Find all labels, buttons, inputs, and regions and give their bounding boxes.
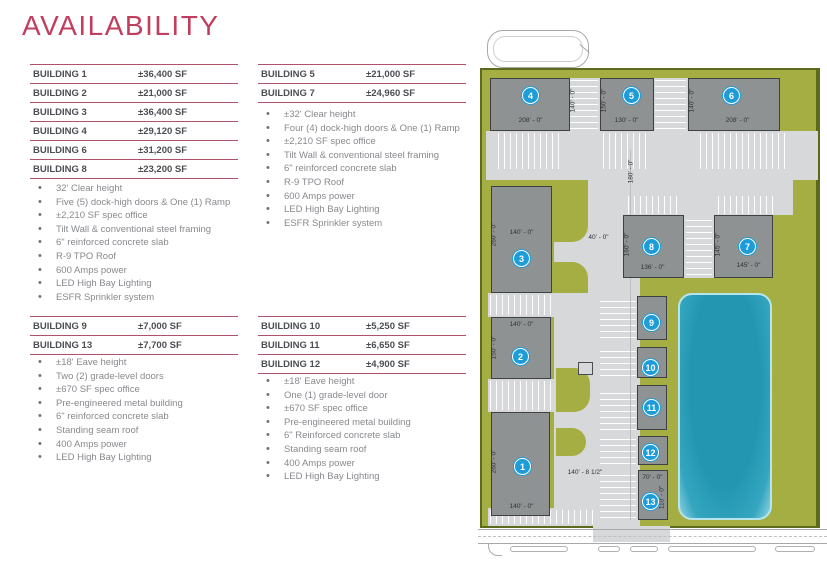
building-sf-value: ±5,250 SF (366, 321, 410, 332)
table-row: BUILDING 7 ±24,960 SF (258, 84, 466, 103)
spec-bullet: 6" reinforced concrete slab (30, 412, 252, 422)
building-2-badge: 2 (512, 348, 529, 365)
building-label: BUILDING 5 (261, 69, 366, 80)
spec-bullet: Two (2) grade-level doors (30, 372, 252, 382)
parking-stripes (700, 133, 785, 169)
page-title: AVAILABILITY (22, 10, 219, 42)
landscape-island (554, 180, 588, 242)
road-end-curve (488, 544, 502, 556)
building-sf-value: ±31,200 SF (138, 145, 187, 156)
building-4-badge: 4 (522, 87, 539, 104)
spec-list-1: 32' Clear heightFive (5) dock-high doors… (30, 184, 252, 306)
building-sf-value: ±7,700 SF (138, 340, 182, 351)
spec-bullet: LED High Bay Lighting (258, 472, 480, 482)
spec-bullet: 600 Amps power (30, 266, 252, 276)
road-median-island (630, 546, 658, 552)
road-median-island (775, 546, 815, 552)
spec-bullet: ESFR Sprinkler system (258, 219, 480, 229)
spec-bullet: ±18' Eave height (30, 358, 252, 368)
detention-pond (678, 293, 772, 520)
table-row: BUILDING 12 ±4,900 SF (258, 355, 466, 374)
spec-bullet: Standing seam roof (30, 426, 252, 436)
table-row: BUILDING 4 ±29,120 SF (30, 122, 238, 141)
table-row: BUILDING 1 ±36,400 SF (30, 65, 238, 84)
spec-bullet: ±2,210 SF spec office (30, 211, 252, 221)
parking-stripes (628, 196, 678, 214)
building-4-depth-dim: 140' - 0" (570, 81, 577, 121)
building-3-width-dim: 140' - 0" (499, 229, 544, 236)
spec-bullet: ±670 SF spec office (258, 404, 480, 414)
spec-bullet: R-9 TPO Roof (258, 178, 480, 188)
building-7-badge: 7 (739, 238, 756, 255)
building-1-badge: 1 (514, 458, 531, 475)
building-13-width-dim: 70' - 0" (630, 474, 675, 481)
building-10-badge: 10 (642, 359, 659, 376)
drive-lane-line (630, 150, 631, 520)
spec-bullet: 600 Amps power (258, 192, 480, 202)
building-13-depth-dim: 110' - 0" (659, 478, 666, 518)
building-label: BUILDING 11 (261, 340, 366, 351)
building-3-badge: 3 (513, 250, 530, 267)
building-13-badge: 13 (642, 493, 659, 510)
building-label: BUILDING 2 (33, 88, 138, 99)
spec-bullet: Standing seam roof (258, 445, 480, 455)
table-row: BUILDING 13 ±7,700 SF (30, 336, 238, 355)
building-1-depth-dim: 260' - 0" (491, 442, 498, 482)
road-edge-line (478, 529, 827, 530)
spec-bullet: ESFR Sprinkler system (30, 293, 252, 303)
road-center-dash (478, 536, 827, 537)
spec-bullet: ±18' Eave height (258, 377, 480, 387)
spec-bullet: LED High Bay Lighting (30, 453, 252, 463)
table-row: BUILDING 2 ±21,000 SF (30, 84, 238, 103)
building-8-width-dim: 136' - 0" (630, 264, 675, 271)
building-label: BUILDING 6 (33, 145, 138, 156)
spec-bullet: Five (5) dock-high doors & One (1) Ramp (30, 198, 252, 208)
table-row: BUILDING 10 ±5,250 SF (258, 317, 466, 336)
building-7-width-dim: 145' - 0" (726, 262, 771, 269)
spec-list-3: ±18' Eave heightTwo (2) grade-level door… (30, 358, 252, 467)
frontage-dim: 140' - 8 1/2" (558, 469, 612, 476)
building-sf-value: ±36,400 SF (138, 107, 187, 118)
building-7-depth-dim: 145' - 0" (715, 225, 722, 265)
building-5-width-dim: 130' - 0" (604, 117, 649, 124)
landscape-island (554, 262, 588, 293)
road-median-island (668, 546, 756, 552)
spec-bullet: Pre-engineered metal building (30, 399, 252, 409)
building-8-depth-dim: 160' - 0" (624, 225, 631, 265)
table-buildings-10-12: BUILDING 10 ±5,250 SF BUILDING 11 ±6,650… (258, 316, 466, 374)
site-plan: 1 2 3 4 5 6 7 8 9 10 11 12 13 208' - 0" … (478, 0, 827, 588)
spec-list-2: ±32' Clear heightFour (4) dock-high door… (258, 110, 480, 232)
building-label: BUILDING 7 (261, 88, 366, 99)
building-3-footprint (491, 186, 552, 293)
table-row: BUILDING 5 ±21,000 SF (258, 65, 466, 84)
building-1-width-dim: 140' - 0" (499, 503, 544, 510)
spec-bullet: Tilt Wall & conventional steel framing (30, 225, 252, 235)
spec-bullet: ±670 SF spec office (30, 385, 252, 395)
spec-bullet: LED High Bay Lighting (30, 279, 252, 289)
road-median-island (598, 546, 620, 552)
building-label: BUILDING 12 (261, 359, 366, 370)
building-9-badge: 9 (643, 314, 660, 331)
building-label: BUILDING 1 (33, 69, 138, 80)
spec-bullet: One (1) grade-level door (258, 391, 480, 401)
spec-bullet: Pre-engineered metal building (258, 418, 480, 428)
parking-stripes (718, 196, 773, 214)
parking-stripes (490, 295, 552, 315)
building-5-depth-dim: 150' - 0" (601, 81, 608, 121)
building-label: BUILDING 8 (33, 164, 138, 175)
building-label: BUILDING 10 (261, 321, 366, 332)
building-3-depth-dim: 260' - 0" (491, 215, 498, 255)
building-label: BUILDING 13 (33, 340, 138, 351)
building-sf-value: ±21,000 SF (366, 69, 415, 80)
table-buildings-9-13: BUILDING 9 ±7,000 SF BUILDING 13 ±7,700 … (30, 316, 238, 355)
cul-de-sac-road (487, 30, 589, 68)
drive-length-dim: 180' - 0" (628, 152, 635, 192)
landscape-island (556, 428, 586, 456)
table-buildings-1-8: BUILDING 1 ±36,400 SF BUILDING 2 ±21,000… (30, 64, 238, 179)
building-2-depth-dim: 150' - 0" (491, 328, 498, 368)
building-11-badge: 11 (643, 399, 660, 416)
building-sf-value: ±23,200 SF (138, 164, 187, 175)
pump-station (578, 362, 593, 375)
cul-de-sac-inner-line (493, 36, 583, 62)
building-sf-value: ±29,120 SF (138, 126, 187, 137)
building-sf-value: ±24,960 SF (366, 88, 415, 99)
table-row: BUILDING 3 ±36,400 SF (30, 103, 238, 122)
spec-bullet: LED High Bay Lighting (258, 205, 480, 215)
table-row: BUILDING 9 ±7,000 SF (30, 317, 238, 336)
table-row: BUILDING 6 ±31,200 SF (30, 141, 238, 160)
spec-bullet: 32' Clear height (30, 184, 252, 194)
building-sf-value: ±7,000 SF (138, 321, 182, 332)
spec-bullet: ±2,210 SF spec office (258, 137, 480, 147)
table-buildings-5-7: BUILDING 5 ±21,000 SF BUILDING 7 ±24,960… (258, 64, 466, 103)
building-12-badge: 12 (642, 444, 659, 461)
building-6-badge: 6 (723, 87, 740, 104)
spec-bullet: 6" reinforced concrete slab (30, 238, 252, 248)
spec-bullet: R-9 TPO Roof (30, 252, 252, 262)
building-sf-value: ±4,900 SF (366, 359, 410, 370)
building-sf-value: ±36,400 SF (138, 69, 187, 80)
building-label: BUILDING 4 (33, 126, 138, 137)
drive-width-dim: 40' - 0" (576, 234, 621, 241)
building-sf-value: ±21,000 SF (138, 88, 187, 99)
table-row: BUILDING 8 ±23,200 SF (30, 160, 238, 179)
spec-list-4: ±18' Eave heightOne (1) grade-level door… (258, 377, 480, 486)
spec-bullet: Tilt Wall & conventional steel framing (258, 151, 480, 161)
building-sf-value: ±6,650 SF (366, 340, 410, 351)
building-8-badge: 8 (643, 238, 660, 255)
table-row: BUILDING 11 ±6,650 SF (258, 336, 466, 355)
building-label: BUILDING 9 (33, 321, 138, 332)
building-5-badge: 5 (623, 87, 640, 104)
building-6-depth-dim: 140' - 0" (689, 81, 696, 121)
road-edge-line (478, 543, 827, 544)
road-median-island (510, 546, 568, 552)
spec-bullet: 6" reinforced concrete slab (258, 164, 480, 174)
parking-stripes (490, 381, 552, 410)
building-4-width-dim: 208' - 0" (508, 117, 553, 124)
parking-stripes (498, 133, 560, 169)
parking-stripes (686, 218, 712, 275)
spec-bullet: Four (4) dock-high doors & One (1) Ramp (258, 124, 480, 134)
parking-stripes (655, 80, 686, 129)
spec-bullet: 6" Reinforced concrete slab (258, 431, 480, 441)
building-2-width-dim: 140' - 0" (499, 321, 544, 328)
building-label: BUILDING 3 (33, 107, 138, 118)
spec-bullet: 400 Amps power (30, 440, 252, 450)
spec-bullet: 400 Amps power (258, 459, 480, 469)
building-6-width-dim: 208' - 0" (715, 117, 760, 124)
spec-bullet: ±32' Clear height (258, 110, 480, 120)
